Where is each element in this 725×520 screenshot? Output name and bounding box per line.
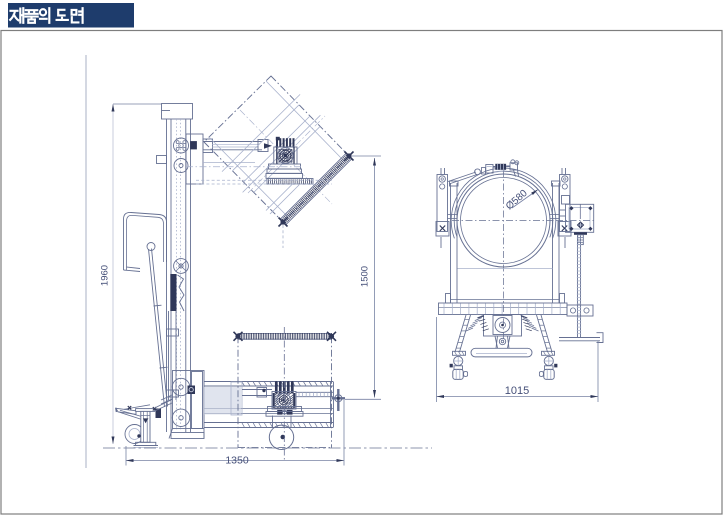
- svg-text:1015: 1015: [505, 385, 529, 397]
- svg-text:1960: 1960: [100, 265, 111, 286]
- svg-text:1350: 1350: [225, 455, 249, 467]
- svg-text:1500: 1500: [360, 266, 371, 287]
